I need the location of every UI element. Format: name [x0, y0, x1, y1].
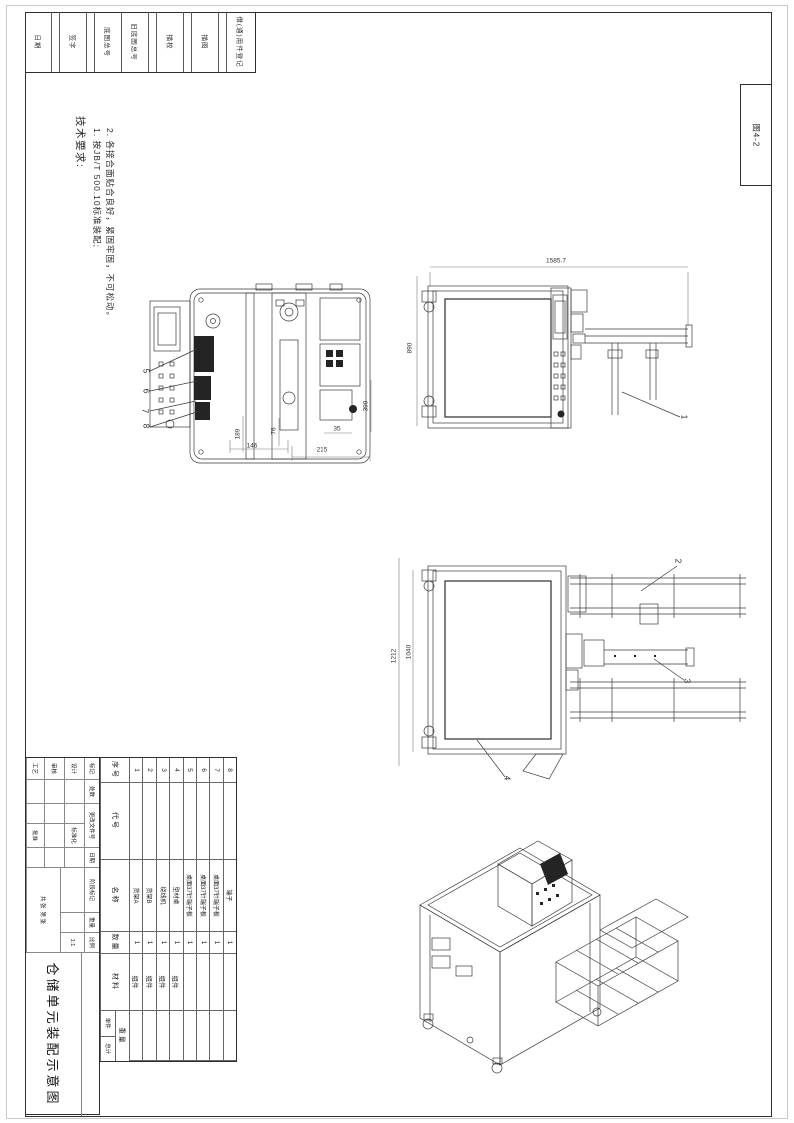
bom-weight — [196, 1011, 209, 1061]
strip-box-signature: 签字 — [60, 12, 87, 72]
bom-index: 1 — [129, 758, 142, 783]
bom-weight — [129, 1011, 142, 1061]
design-sig-cell — [64, 780, 84, 804]
title-block-title-area: 仓储单元装配示意图 — [26, 953, 99, 1116]
dim-76: 76 — [271, 427, 278, 434]
balloon-6: 6 — [142, 389, 151, 393]
strip-spacer — [52, 12, 60, 72]
process-label: 工艺 — [26, 758, 44, 780]
bom-qty: 1 — [209, 932, 222, 954]
unit-name-cell — [81, 953, 99, 1116]
scale-value: 1:1 — [60, 933, 84, 953]
bom-weight — [169, 1011, 182, 1061]
check-sig-cell — [44, 780, 64, 804]
bom-name: 桌面37针端子板 — [183, 860, 196, 932]
sheet-no-label: 第 张 — [40, 912, 48, 925]
bom-header-code: 代号 — [100, 783, 129, 860]
title-block-signatures: 标记 处数 更改文件号 日期 设计 标准化 审核 工艺 批准 — [26, 758, 99, 868]
dim-189: 189 — [235, 429, 242, 440]
bom-code — [183, 783, 196, 860]
balloon-4: 4 — [503, 776, 512, 780]
margin-strip: 日期 签字 底图总号 旧底图总号 描校 描图 借(通)用件登记 — [25, 12, 256, 73]
dim-1212: 1212 — [391, 649, 398, 663]
standardization-label: 标准化 — [64, 824, 84, 848]
bom-qty: 1 — [169, 932, 182, 954]
bom-material — [183, 954, 196, 1011]
dim-146: 146 — [247, 443, 258, 450]
balloon-5: 5 — [142, 369, 151, 373]
bom-weight — [156, 1011, 169, 1061]
approve-label: 批准 — [26, 824, 44, 848]
bom-qty: 1 — [196, 932, 209, 954]
empty-cell — [44, 848, 64, 868]
drawing-sheet: 日期 签字 底图总号 旧底图总号 描校 描图 借(通)用件登记 图4-2 技术要… — [0, 0, 794, 1123]
bom-material: 组件 — [169, 954, 182, 1011]
strip-box-trace-draw: 描图 — [192, 12, 219, 72]
bom-code — [142, 783, 155, 860]
bom-header-weight: 重量 单件 总计 — [100, 1011, 129, 1061]
bom-material — [209, 954, 222, 1011]
balloon-7: 7 — [141, 409, 150, 413]
bom-name: 绕线机 — [156, 860, 169, 932]
bom-index: 2 — [142, 758, 155, 783]
std-sig-cell — [64, 848, 84, 868]
design-label: 设计 — [64, 758, 84, 780]
strip-box-master-no: 底图总号 — [95, 12, 122, 72]
bom-header-weight-total: 总计 — [101, 1037, 115, 1062]
dim-890: 890 — [407, 343, 414, 354]
bom-code — [196, 783, 209, 860]
balloon-2: 2 — [674, 559, 683, 563]
dim-1585-7: 1585.7 — [546, 258, 566, 265]
check-label: 审核 — [44, 758, 64, 780]
bom-code — [223, 783, 236, 860]
bom-qty: 1 — [142, 932, 155, 954]
balloon-8: 8 — [142, 424, 151, 428]
revision-docno-label: 更改文件号 — [84, 804, 99, 848]
process-date-cell — [26, 804, 44, 824]
strip-box-borrowed-parts: 借(通)用件登记 — [227, 12, 255, 72]
bom-qty: 1 — [129, 932, 142, 954]
stage-mark-label: 阶段标记 — [84, 868, 99, 913]
bom-name: 货架A — [129, 860, 142, 932]
tech-requirements-item-1: 1. 按JB/T 500.10标准装配; — [91, 128, 103, 248]
drawing-title: 仓储单元装配示意图 — [26, 953, 81, 1116]
bom-index: 3 — [156, 758, 169, 783]
scale-label: 比例 — [84, 933, 99, 953]
bom-header-name: 名称 — [100, 860, 129, 932]
bom-index: 6 — [196, 758, 209, 783]
strip-spacer — [184, 12, 192, 72]
strip-box-date: 日期 — [25, 12, 52, 72]
figure-label: 图4-2 — [751, 123, 762, 147]
empty-cell — [44, 824, 64, 848]
bom-name: 桌面37针端子板 — [209, 860, 222, 932]
bom-material: 组件 — [129, 954, 142, 1011]
bom-name: 型材桌 — [169, 860, 182, 932]
approve-sig-cell — [26, 848, 44, 868]
weight-label: 重量 — [84, 913, 99, 933]
title-block-stage-scale: 阶段标记 重量 比例 1:1 共 张 第 张 — [26, 868, 99, 953]
bom-weight — [183, 1011, 196, 1061]
dim-215: 215 — [317, 447, 328, 454]
bom-name: 桌面37针端子板 — [196, 860, 209, 932]
title-block: 标记 处数 更改文件号 日期 设计 标准化 审核 工艺 批准 阶段标记 重量 比… — [25, 757, 100, 1115]
balloon-3: 3 — [683, 679, 692, 683]
bom-weight — [223, 1011, 236, 1061]
bom-weight — [142, 1011, 155, 1061]
revision-count-label: 处数 — [84, 780, 99, 804]
design-date-cell — [64, 804, 84, 824]
bom-index: 8 — [223, 758, 236, 783]
bom-code — [156, 783, 169, 860]
strip-box-trace-check: 描校 — [157, 12, 184, 72]
strip-spacer — [219, 12, 227, 72]
bom-material: 组件 — [142, 954, 155, 1011]
dim-399: 399 — [363, 401, 370, 412]
tech-requirements-title: 技术要求: — [73, 116, 88, 168]
bom-index: 5 — [183, 758, 196, 783]
bom-header-qty: 数量 — [100, 932, 129, 954]
bom-code — [129, 783, 142, 860]
strip-box-old-master-no: 旧底图总号 — [122, 12, 149, 72]
strip-spacer — [149, 12, 157, 72]
balloon-1: 1 — [680, 415, 689, 419]
bom-weight — [209, 1011, 222, 1061]
check-date-cell — [44, 804, 64, 824]
revision-mark-label: 标记 — [84, 758, 99, 780]
bom-qty: 1 — [223, 932, 236, 954]
bom-code — [209, 783, 222, 860]
bom-qty: 1 — [156, 932, 169, 954]
bom-material — [223, 954, 236, 1011]
strip-spacer — [87, 12, 95, 72]
process-sig-cell — [26, 780, 44, 804]
weight-value-cell — [60, 913, 84, 933]
figure-label-box: 图4-2 — [740, 84, 771, 186]
bom-material: 组件 — [156, 954, 169, 1011]
bom-header-index: 序号 — [100, 758, 129, 783]
revision-date-label: 日期 — [84, 848, 99, 868]
stage-mark-cell — [60, 868, 84, 913]
bom-header-material: 材料 — [100, 954, 129, 1011]
bom-qty: 1 — [183, 932, 196, 954]
bom-index: 4 — [169, 758, 182, 783]
sheet-count-cell: 共 张 第 张 — [26, 868, 60, 953]
bom-material — [196, 954, 209, 1011]
bom-index: 7 — [209, 758, 222, 783]
bom-code — [169, 783, 182, 860]
sheet-total-label: 共 张 — [40, 896, 48, 909]
bom-header-weight-unit: 单件 — [101, 1011, 115, 1037]
dim-1040: 1040 — [406, 645, 413, 659]
bom-table: 8端子1 7桌面37针端子板1 6桌面37针端子板1 5桌面37针端子板1 4型… — [100, 757, 237, 1062]
tech-requirements-item-2: 2. 各接合面贴合良好，紧固牢固，不可松动。 — [104, 128, 116, 321]
bom-name: 端子 — [223, 860, 236, 932]
bom-name: 货架B — [142, 860, 155, 932]
dim-35: 35 — [333, 426, 340, 433]
